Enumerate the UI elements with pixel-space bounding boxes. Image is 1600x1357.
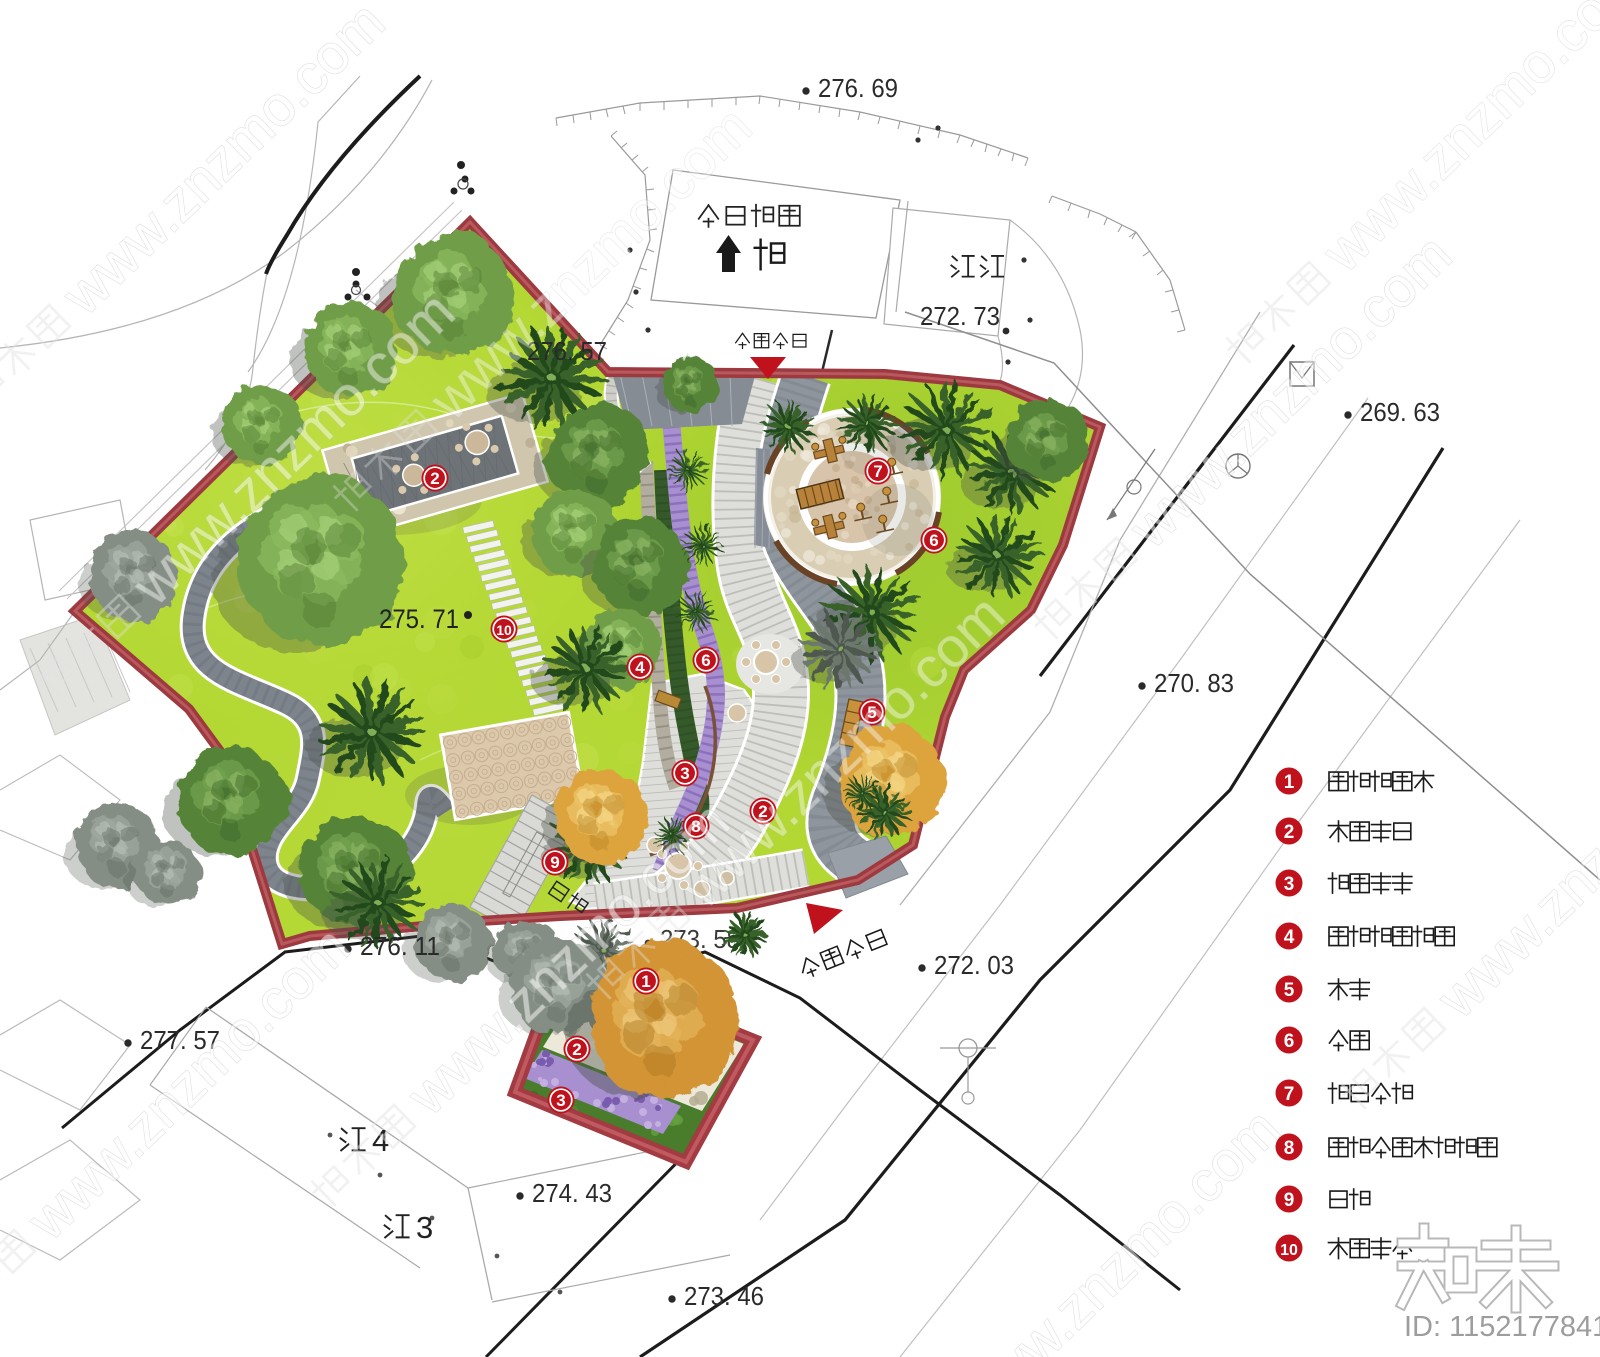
svg-text:272. 73: 272. 73 (920, 301, 1000, 331)
svg-text:9: 9 (550, 853, 559, 872)
svg-text:2: 2 (1284, 822, 1295, 843)
svg-text:273. 46: 273. 46 (684, 1281, 764, 1311)
svg-text:269. 63: 269. 63 (1360, 397, 1440, 427)
svg-text:2: 2 (572, 1040, 581, 1059)
svg-text:3: 3 (1284, 874, 1295, 895)
svg-text:5: 5 (1284, 980, 1295, 1001)
svg-text:272. 03: 272. 03 (934, 950, 1014, 980)
svg-text:3: 3 (416, 1210, 433, 1245)
svg-text:6: 6 (701, 651, 710, 670)
svg-text:9: 9 (1284, 1190, 1295, 1211)
svg-text:276. 69: 276. 69 (818, 73, 898, 103)
svg-text:270. 83: 270. 83 (1154, 668, 1234, 698)
svg-text:1: 1 (641, 972, 650, 991)
svg-text:4: 4 (635, 658, 645, 677)
svg-text:7: 7 (873, 462, 882, 481)
svg-text:276. 11: 276. 11 (360, 931, 440, 961)
svg-text:ID: 1152177841: ID: 1152177841 (1404, 1311, 1600, 1343)
svg-text:6: 6 (929, 531, 938, 550)
svg-text:3: 3 (556, 1091, 565, 1110)
svg-text:1: 1 (1284, 772, 1295, 793)
svg-text:10: 10 (496, 622, 512, 638)
svg-text:4: 4 (1284, 927, 1295, 948)
svg-text:275. 71: 275. 71 (379, 604, 459, 634)
svg-text:3: 3 (680, 764, 689, 783)
svg-text:6: 6 (1284, 1031, 1295, 1052)
svg-text:2: 2 (430, 469, 439, 488)
svg-text:10: 10 (1280, 1242, 1298, 1259)
svg-text:7: 7 (1284, 1084, 1295, 1105)
svg-text:274. 43: 274. 43 (532, 1178, 612, 1208)
